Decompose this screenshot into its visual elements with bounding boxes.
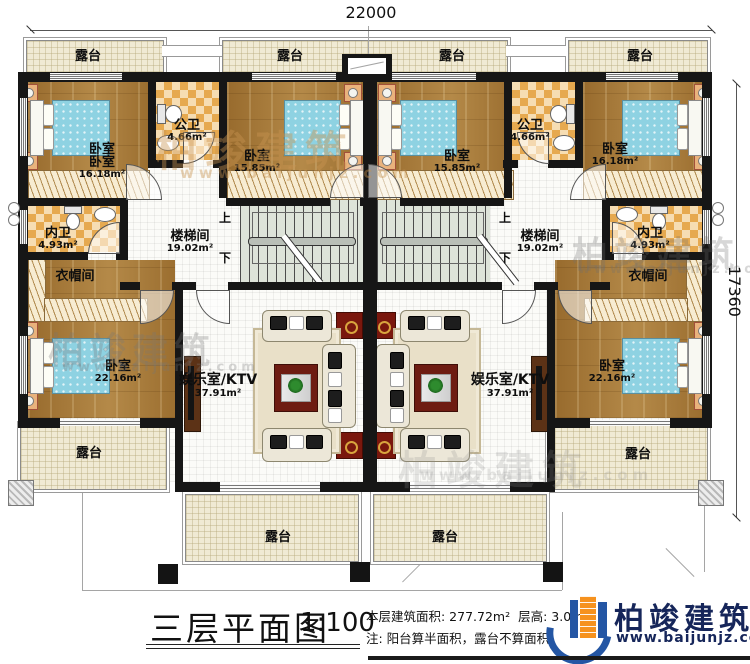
logo-building-icon <box>598 602 607 638</box>
wall <box>367 282 502 290</box>
pillow <box>43 104 54 126</box>
shrub-icon <box>712 214 724 226</box>
room-label-terrace-top-center-right: 露台 <box>439 50 465 63</box>
pillow <box>677 104 688 126</box>
bed <box>400 100 457 156</box>
toilet <box>566 104 575 124</box>
wall <box>140 418 178 428</box>
sofa-cushion <box>289 435 304 449</box>
shrub-icon <box>712 202 724 214</box>
sofa-cushion <box>289 316 304 330</box>
wall <box>548 160 583 168</box>
floor-plan-canvas: 露台 露台 露台 露台 卧室卧室16.18m² 公卫4.66m² 卧室15.85… <box>0 0 750 664</box>
logo-swoosh-icon <box>534 587 625 664</box>
sink <box>94 207 116 222</box>
pillow <box>43 128 54 150</box>
room-label-terrace-bottom-right: 露台 <box>625 448 651 461</box>
wall <box>360 198 368 206</box>
corner-pier <box>8 480 34 506</box>
wall <box>400 198 504 206</box>
pillow <box>391 128 402 150</box>
title-underline <box>146 648 360 649</box>
wall <box>175 482 220 492</box>
sofa-cushion <box>408 316 425 330</box>
eave-diagonal <box>666 548 695 577</box>
room-label-cloakroom-left: 衣帽间 <box>55 270 94 283</box>
eave-line <box>82 590 562 591</box>
stair-handrail <box>380 237 488 246</box>
wall <box>503 160 518 168</box>
closet <box>584 298 688 322</box>
room-label-stairwell-left: 楼梯间19.02m² <box>167 230 213 254</box>
terrace-connector <box>162 45 222 57</box>
stair-handrail <box>248 237 356 246</box>
column <box>158 564 178 584</box>
window <box>590 420 670 426</box>
room-label-terrace-bottom-center-left: 露台 <box>265 531 291 544</box>
room-label-ktv-right: 娱乐室/KTV37.91m² <box>471 373 549 399</box>
logo-building-icon <box>570 600 578 638</box>
room-label-bedroom-bottom-right: 卧室22.16m² <box>589 360 635 384</box>
sofa-cushion <box>328 408 342 423</box>
window <box>50 73 122 80</box>
bed-headboard <box>688 338 702 394</box>
dimension-value-width: 22000 <box>342 3 401 22</box>
pillow <box>677 342 688 364</box>
wall <box>18 198 126 206</box>
corner-pier <box>698 480 724 506</box>
room-label-bedroom-top-left: 卧室卧室16.18m² <box>79 143 125 180</box>
wall <box>604 198 712 206</box>
wall <box>552 418 590 428</box>
column <box>350 562 370 582</box>
pillow <box>677 366 688 388</box>
dimension-line-top <box>30 30 712 31</box>
title-underline <box>146 644 360 645</box>
stair-up-label-left: 上 <box>219 212 231 224</box>
wall <box>120 282 140 290</box>
plant <box>428 378 443 393</box>
stair-down-label-right: 下 <box>499 252 511 264</box>
pillow <box>677 128 688 150</box>
stair-up-label-right: 上 <box>499 212 511 224</box>
window <box>20 98 27 156</box>
room-label-inner-bath-left: 内卫4.93m² <box>38 227 77 251</box>
terrace-bottom-center-left <box>185 494 359 562</box>
sofa-cushion <box>270 435 287 449</box>
shrub-icon <box>8 202 20 214</box>
wall <box>670 418 712 428</box>
terrace-bottom-center-right <box>373 494 547 562</box>
room-label-terrace-top-left: 露台 <box>75 50 101 63</box>
wall <box>18 252 88 260</box>
room-label-terrace-top-center-left: 露台 <box>277 50 303 63</box>
sofa-cushion <box>444 316 461 330</box>
wall <box>228 282 367 290</box>
room-label-bedroom-top-right: 卧室16.18m² <box>592 143 638 167</box>
sofa-cushion <box>328 352 342 369</box>
sofa-cushion <box>390 390 404 407</box>
watermark-url: www.baijunjz.com <box>180 164 413 182</box>
brand-site: www.baijunjz.com <box>616 630 750 646</box>
wall <box>120 198 128 260</box>
bed-headboard <box>378 100 392 156</box>
window <box>20 210 27 244</box>
bed-headboard <box>30 100 44 156</box>
room-label-stairwell-right: 楼梯间19.02m² <box>517 230 563 254</box>
window <box>20 336 27 394</box>
sofa-cushion <box>270 316 287 330</box>
window <box>392 73 476 80</box>
sink <box>616 207 638 222</box>
stair-down-label-left: 下 <box>219 252 231 264</box>
sink <box>553 135 575 151</box>
column <box>543 562 563 582</box>
wall <box>226 198 330 206</box>
wall <box>590 282 610 290</box>
window <box>220 484 320 490</box>
wall <box>575 82 583 166</box>
window <box>252 73 336 80</box>
logo-building-icon <box>580 596 596 638</box>
sofa-cushion <box>306 316 323 330</box>
room-label-bedroom-center-right: 卧室15.85m² <box>434 150 480 174</box>
terrace-connector <box>506 45 566 57</box>
sofa-cushion <box>306 435 323 449</box>
sofa-cushion <box>390 408 404 423</box>
sofa-cushion <box>390 352 404 369</box>
room-label-public-bath-right: 公卫4.66m² <box>510 119 549 143</box>
room-label-ktv-left: 娱乐室/KTV37.91m² <box>179 373 257 399</box>
closet <box>44 298 148 322</box>
wall <box>18 418 60 428</box>
room-label-terrace-bottom-center-right: 露台 <box>432 531 458 544</box>
sofa-cushion <box>328 372 342 387</box>
sofa-cushion <box>390 372 404 387</box>
watermark-url: www.baijunjz.com <box>62 360 259 375</box>
remark-note: 注: 阳台算半面积，露台不算面积 <box>366 628 549 647</box>
window <box>703 98 710 156</box>
sofa-cushion <box>427 316 442 330</box>
bottom-rule <box>368 656 750 660</box>
plant <box>288 378 303 393</box>
sofa-cushion <box>328 390 342 407</box>
room-label-terrace-bottom-left: 露台 <box>76 447 102 460</box>
window <box>60 420 140 426</box>
drawing-scale: 1:100 <box>300 608 375 638</box>
shrub-icon <box>8 214 20 226</box>
window <box>703 336 710 394</box>
room-label-terrace-top-right: 露台 <box>627 50 653 63</box>
bed-headboard <box>30 338 44 394</box>
wall <box>172 282 196 290</box>
watermark-url: www.baijunjz.com <box>420 466 653 484</box>
eave-line <box>82 492 83 590</box>
toilet-bowl <box>550 105 567 123</box>
pillow <box>391 104 402 126</box>
window <box>606 73 678 80</box>
bed-headboard <box>688 100 702 156</box>
wall <box>534 282 558 290</box>
dimension-value-height: 17360 <box>725 266 744 317</box>
